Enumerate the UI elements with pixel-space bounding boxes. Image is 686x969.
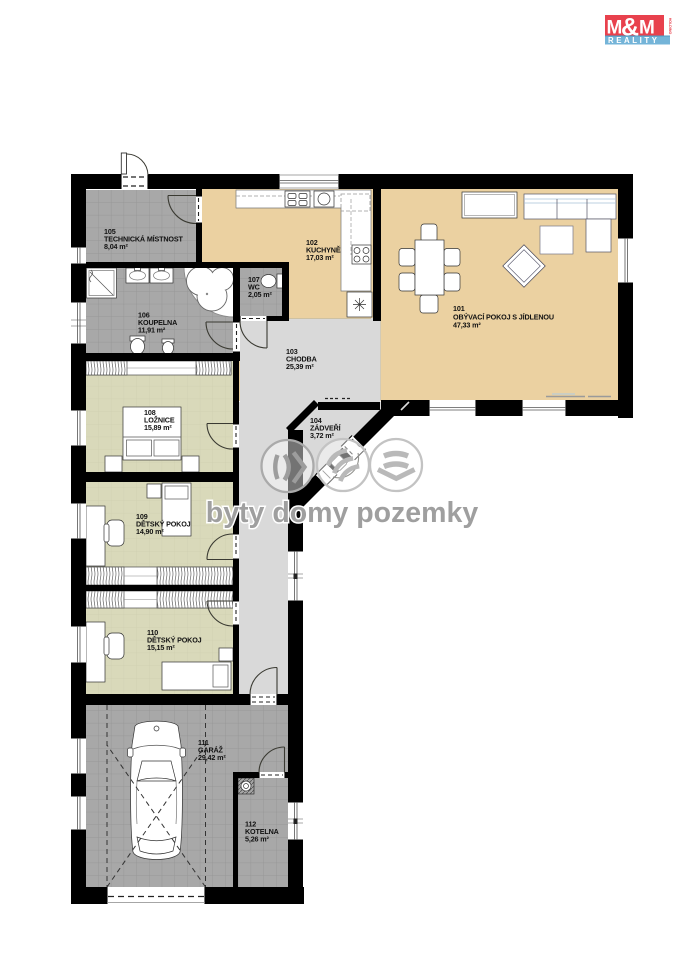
svg-text:REALITY: REALITY xyxy=(608,36,660,45)
svg-text:11,91 m²: 11,91 m² xyxy=(138,326,166,335)
svg-text:HOLDING: HOLDING xyxy=(668,18,672,35)
svg-text:15,15 m²: 15,15 m² xyxy=(147,643,175,652)
svg-text:47,33 m²: 47,33 m² xyxy=(453,321,481,330)
svg-text:29,42 m²: 29,42 m² xyxy=(198,753,226,762)
svg-text:2,05 m²: 2,05 m² xyxy=(248,290,272,299)
svg-text:byty domy pozemky: byty domy pozemky xyxy=(206,497,479,529)
svg-text:15,89 m²: 15,89 m² xyxy=(144,423,172,432)
svg-text:17,03 m²: 17,03 m² xyxy=(306,253,334,262)
svg-text:8,04 m²: 8,04 m² xyxy=(104,242,128,251)
svg-text:5,26 m²: 5,26 m² xyxy=(245,835,269,844)
svg-text:14,90 m²: 14,90 m² xyxy=(136,527,164,536)
svg-text:3,72 m²: 3,72 m² xyxy=(310,431,334,440)
svg-text:25,39 m²: 25,39 m² xyxy=(286,362,314,371)
